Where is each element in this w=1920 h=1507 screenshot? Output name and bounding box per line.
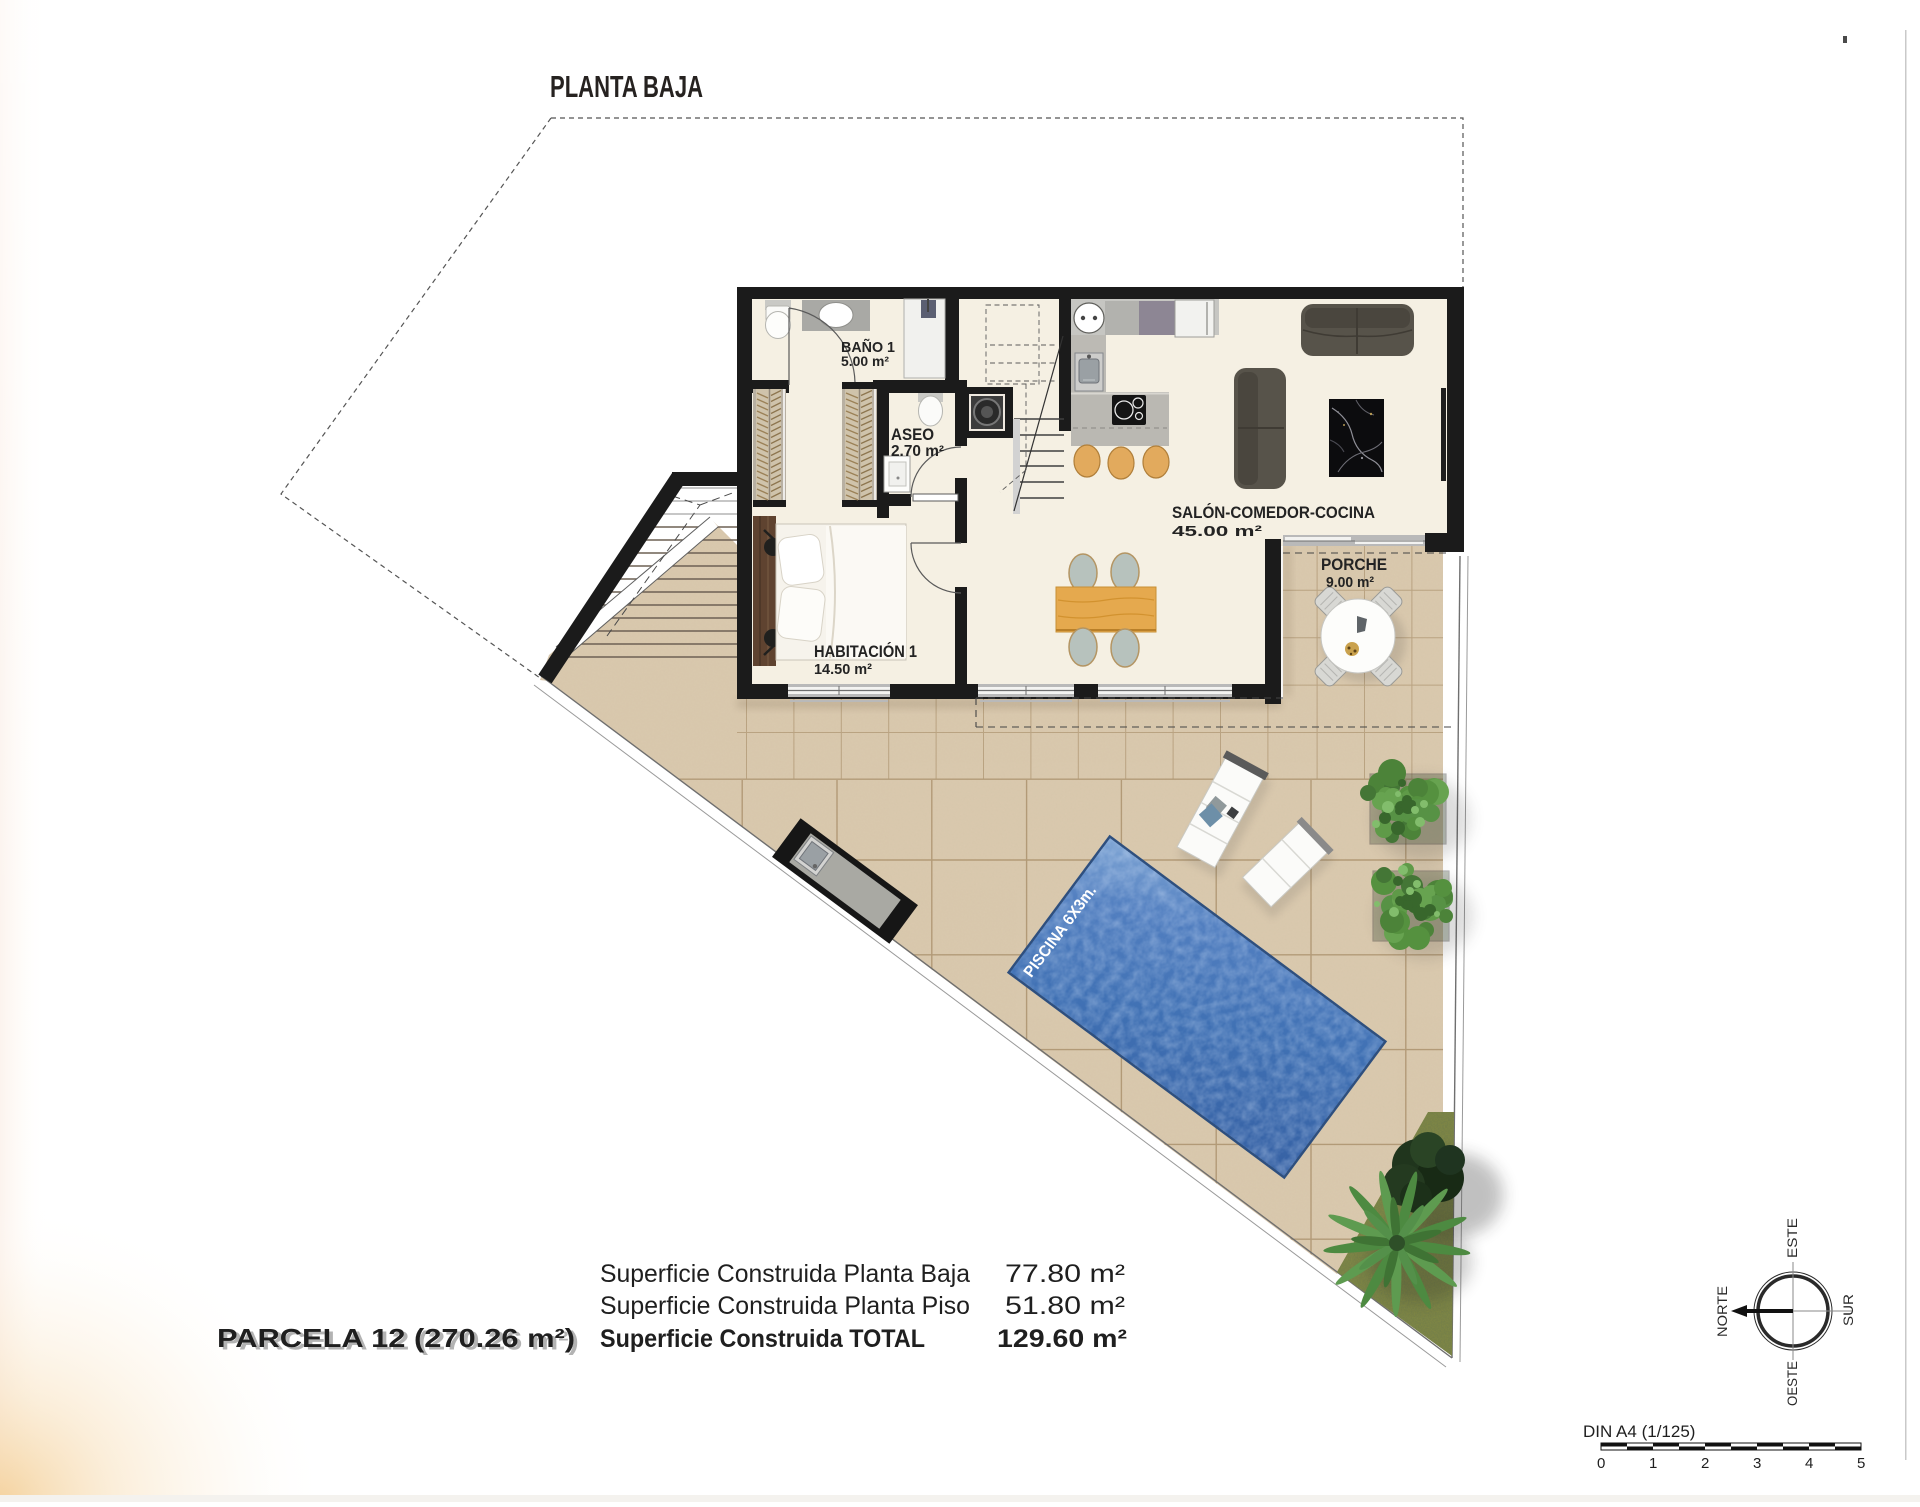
- svg-text:HABITACIÓN 1: HABITACIÓN 1: [814, 642, 917, 661]
- svg-text:DIN A4 (1/125): DIN A4 (1/125): [1583, 1422, 1695, 1441]
- svg-text:2.70 m²: 2.70 m²: [891, 443, 944, 460]
- svg-text:Superficie Construida TOTAL: Superficie Construida TOTAL: [600, 1325, 925, 1353]
- svg-text:5: 5: [1857, 1455, 1865, 1472]
- svg-text:4: 4: [1805, 1455, 1813, 1472]
- svg-text:Superficie Construida Planta B: Superficie Construida Planta Baja: [600, 1260, 970, 1288]
- svg-text:PARCELA 12 (270.26 m²): PARCELA 12 (270.26 m²): [217, 1323, 575, 1353]
- svg-text:2: 2: [1701, 1455, 1709, 1472]
- svg-text:45.00 m²: 45.00 m²: [1172, 523, 1262, 540]
- svg-text:1: 1: [1649, 1455, 1657, 1472]
- svg-text:0: 0: [1597, 1455, 1605, 1472]
- svg-text:51.80 m²: 51.80 m²: [1005, 1292, 1125, 1320]
- svg-text:77.80 m²: 77.80 m²: [1005, 1260, 1125, 1288]
- svg-text:14.50 m²: 14.50 m²: [814, 661, 872, 678]
- svg-text:5.00 m²: 5.00 m²: [841, 353, 889, 369]
- svg-text:SALÓN-COMEDOR-COCINA: SALÓN-COMEDOR-COCINA: [1172, 503, 1375, 522]
- svg-text:129.60 m²: 129.60 m²: [997, 1325, 1127, 1353]
- svg-text:9.00 m²: 9.00 m²: [1326, 574, 1374, 591]
- svg-text:ESTE: ESTE: [1784, 1218, 1800, 1258]
- svg-text:ASEO: ASEO: [891, 425, 934, 444]
- svg-text:Superficie Construida Planta P: Superficie Construida Planta Piso: [600, 1292, 970, 1320]
- svg-text:NORTE: NORTE: [1714, 1286, 1730, 1337]
- svg-text:PLANTA BAJA: PLANTA BAJA: [550, 69, 703, 104]
- svg-text:3: 3: [1753, 1455, 1761, 1472]
- svg-text:SUR: SUR: [1840, 1294, 1856, 1326]
- svg-text:PORCHE: PORCHE: [1321, 555, 1387, 574]
- svg-text:OESTE: OESTE: [1784, 1361, 1800, 1406]
